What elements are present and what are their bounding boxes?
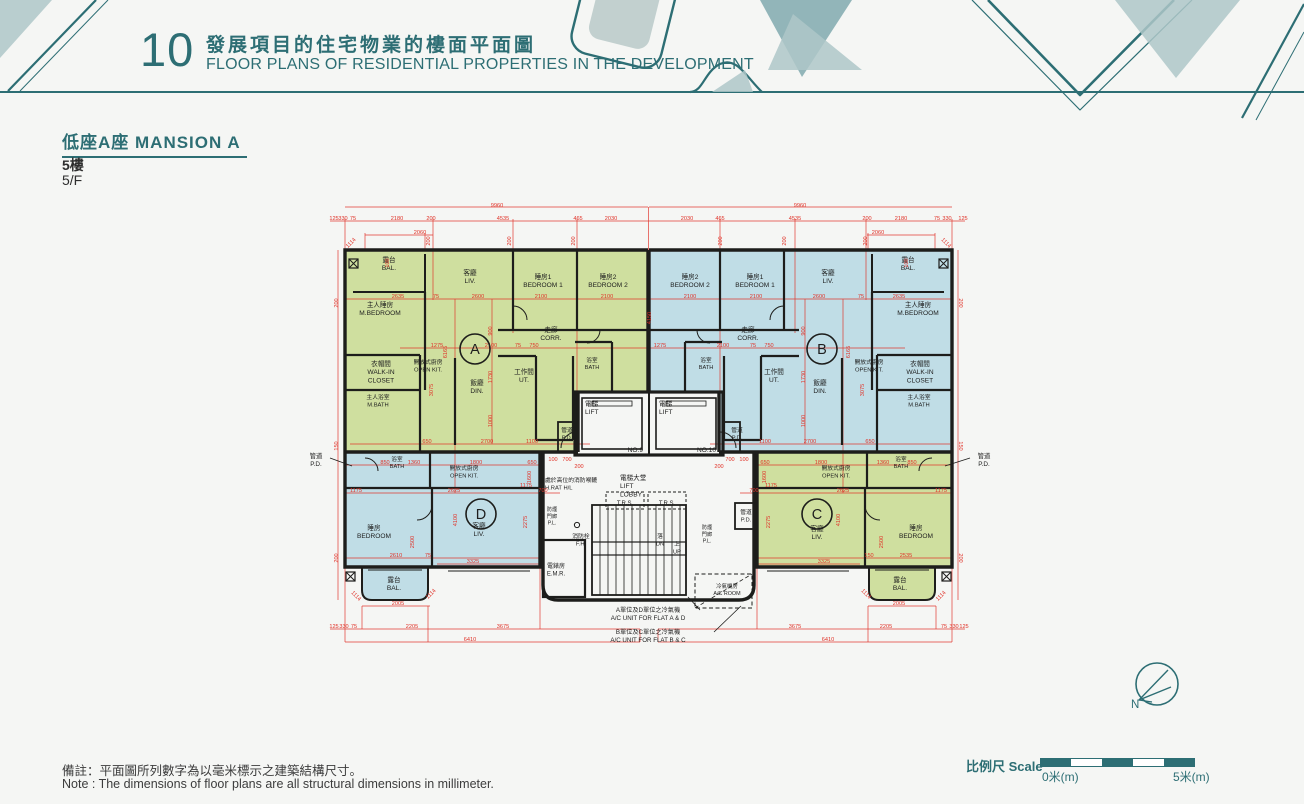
dimension-label: 700 [725,457,734,463]
dimension-label: 1275 [654,343,666,349]
dimension-label: 2060 [414,230,426,236]
dimension-label: 4535 [497,216,509,222]
dimension-label: 2700 [481,439,493,445]
dimension-label: 330 [339,624,348,630]
dimension-label: 125 [329,624,338,630]
dimension-label: 6410 [464,637,476,643]
room-label: 消防栓F.H. [572,532,590,547]
dimension-label: 200 [426,236,432,245]
compass: N [1131,663,1178,711]
room-label: 電梯LIFT [659,399,673,416]
floor-plan-svg: 露台BAL.客廳LIV.睡房1BEDROOM 1睡房2BEDROOM 2主人睡房… [0,0,1304,804]
header-decoration [0,0,1304,120]
dimension-label: 2100 [717,343,729,349]
dimension-label: 75 [934,216,940,222]
dimension-label: 2700 [804,439,816,445]
dimension-label: 700 [749,488,758,494]
dimension-label: 2535 [900,553,912,559]
room-label: 管道P.D. [731,426,743,441]
room-label: 衣帽間WALK-INCLOSET [367,359,394,384]
dimension-label: 1360 [877,460,889,466]
dimension-label: 650 [760,460,769,466]
dimension-label: 2005 [893,601,905,607]
room-label: 處於高位的消防喉轆H.RAT H/L [545,476,597,491]
dimension-label: 2100 [684,294,696,300]
dimension-label: 1114 [349,590,361,602]
dimension-label: 75 [425,553,431,559]
dimension-label: 1360 [408,460,420,466]
dimension-label: 75 [433,294,439,300]
dimension-label: 200 [863,236,869,245]
dimension-label: 9960 [491,203,503,209]
dimension-label: 2275 [523,516,529,528]
dimension-label: 9960 [794,203,806,209]
room-label: 開放式廚房OPEN KIT. [855,358,884,373]
room-label: 電錶房E.M.R. [547,562,566,578]
dimension-label: 2635 [893,294,905,300]
dimension-label: 200 [571,236,577,245]
dimension-label: 150 [334,441,340,450]
dimension-label: 6165 [846,346,852,358]
dimension-label: 4150 [647,312,653,324]
dimension-label: 6410 [822,637,834,643]
room-label: 冷氣機房A/C ROOM [713,582,741,597]
dimension-label: 1175 [350,488,362,494]
room-label: 飯廳DIN. [470,378,484,395]
dimension-label: 1100 [759,439,771,445]
dimension-label: 125 [959,624,968,630]
dimension-label: 4100 [453,514,459,526]
dimension-label: 200 [714,464,723,470]
scale-label: 比例尺 Scale [966,756,1043,775]
dimension-label: 1000 [801,415,807,427]
fire-hydrant-icon [574,522,579,527]
room-label: 管道P.D. [561,426,573,441]
dimension-label: 750 [764,343,773,349]
dimension-label: 2635 [392,294,404,300]
dimension-label: 75 [351,624,357,630]
flat-d-area [345,452,540,567]
dimension-label: 2600 [472,294,484,300]
dimension-label: 1000 [488,415,494,427]
dimension-label: 850 [380,460,389,466]
dimension-label: 3675 [497,624,509,630]
room-label: 浴室BATH [894,455,909,470]
dimension-label: 200 [426,216,435,222]
dimension-label: 150 [957,441,963,450]
dimension-label: 75 [941,624,947,630]
dimension-label: 2100 [535,294,547,300]
room-label: NO.9 [628,447,644,454]
dimension-label: 650 [527,460,536,466]
dimension-label: 2500 [879,536,885,548]
dimension-label: 200 [507,236,513,245]
unit-b-mark: B [817,342,827,358]
room-label: 落DN [656,532,664,547]
dimension-label: 2610 [390,553,402,559]
dimension-label: 700 [562,457,571,463]
dimension-label: 1175 [935,488,947,494]
dimension-label: 200 [782,236,788,245]
dimension-label: 900 [488,326,494,335]
dimension-label: 2030 [605,216,617,222]
dimension-label: 2625 [448,488,460,494]
dimension-label: 1114 [935,590,947,602]
dimension-label: 330 [949,624,958,630]
dimension-label: 200 [957,553,963,562]
dimension-label: 1800 [470,460,482,466]
room-label: 客廳LIV. [463,268,477,285]
dimension-label: 200 [862,216,871,222]
dimension-label: 75 [750,343,756,349]
room-label: 浴室BATH [585,356,600,371]
dimension-label: 1800 [815,460,827,466]
dimension-label: 1275 [431,343,443,349]
unit-a-mark: A [470,342,480,358]
room-label: 衣帽間WALK-INCLOSET [906,359,933,384]
room-label: 開放式廚房OPEN KIT. [414,358,443,373]
dimension-label: 100 [739,457,748,463]
dimension-label: 150 [864,553,873,559]
unit-d-mark: D [476,507,486,523]
room-label: 浴室BATH [390,455,405,470]
room-label: 浴室BATH [699,356,714,371]
dimension-label: 2060 [872,230,884,236]
room-label: A單位及D單位之冷氣機A/C UNIT FOR FLAT A & D [611,606,686,622]
dimension-label: 2100 [601,294,613,300]
dimension-label: 3675 [789,624,801,630]
dimension-label: 2600 [813,294,825,300]
room-label: 防煙門廊P.L. [547,505,557,527]
room-label: T.R.S. [659,501,676,507]
room-label: 主人浴室M.BATH [366,393,389,408]
dimension-label: 125 [329,216,338,222]
scale-start-label: 0米(m) [1042,768,1079,785]
dimension-label: 200 [334,298,340,307]
room-label: 開放式廚房OPEN KIT. [822,464,851,479]
dimension-label: 650 [422,439,431,445]
room-label: T.R.S. [617,501,634,507]
stair-treads [600,505,680,595]
dimension-label: 2030 [681,216,693,222]
room-label: 管道P.D. [978,451,991,468]
dimension-label: 2625 [837,488,849,494]
room-label: 防煙門廊P.L. [702,523,712,545]
room-label: 飯廳DIN. [813,378,827,395]
note-en: Note : The dimensions of floor plans are… [62,777,494,791]
room-label: 主人浴室M.BATH [907,393,930,408]
dimension-label: 4100 [836,514,842,526]
room-label: 管道P.D. [310,451,323,468]
dimension-label: 700 [538,488,547,494]
room-label: B單位及C單位之冷氣機A/C UNIT FOR FLAT B & C [610,628,686,644]
dimension-label: 75 [858,294,864,300]
room-label: 開放式廚房OPEN KIT. [450,464,479,479]
dimension-label: 6165 [443,346,449,358]
dimension-label: 200 [957,298,963,307]
dimension-label: 465 [715,216,724,222]
dimension-label: 2180 [895,216,907,222]
dimension-label: 1100 [526,439,538,445]
dimension-label: 2005 [392,601,404,607]
dimension-label: 2275 [766,516,772,528]
dimension-label: 200 [718,236,724,245]
dimension-label: 2100 [485,343,497,349]
scale-end-label: 5米(m) [1173,768,1210,785]
dimension-label: 2205 [880,624,892,630]
dimension-label: 1114 [345,237,357,249]
dimension-label: 1114 [939,237,951,249]
dimension-label: 650 [865,439,874,445]
scale-bar [1040,758,1195,767]
dimension-label: 750 [529,343,538,349]
dimension-label: 2100 [750,294,762,300]
dimension-label: 2180 [391,216,403,222]
dimension-label: 900 [801,326,807,335]
dimension-label: 1730 [488,371,494,383]
dimension-label: 4535 [789,216,801,222]
dimension-label: 1600 [527,471,533,483]
dimension-label: 1600 [762,471,768,483]
dimension-label: 3325 [818,559,830,565]
dimension-label: 100 [385,258,391,267]
room-label: 露台BAL. [893,575,907,592]
compass-n-label: N [1131,699,1139,711]
unit-c-mark: C [812,507,822,523]
room-label: 客廳LIV. [810,524,824,541]
dimension-label: 75 [350,216,356,222]
dimension-label: 465 [573,216,582,222]
room-label: 客廳LIV. [821,268,835,285]
dimension-label: 200 [334,553,340,562]
dimension-label: 2500 [410,536,416,548]
room-label: 管道P.D. [740,508,752,523]
dimension-label: 100 [548,457,557,463]
dimension-label: 850 [907,460,916,466]
dimension-label: 125 [958,216,967,222]
dimension-label: 100 [904,258,910,267]
dimension-label: 330 [338,216,347,222]
room-label: 露台BAL. [387,575,401,592]
dimension-label: 330 [942,216,951,222]
room-label: 電梯LIFT [585,399,599,416]
dimension-label: 3075 [860,384,866,396]
room-label: NO.10 [697,447,716,454]
flat-c-area [757,452,952,567]
dimension-label: 75 [515,343,521,349]
dimension-label: 1730 [801,371,807,383]
dimension-label: 2205 [406,624,418,630]
dimension-label: 3075 [429,384,435,396]
room-label: 電梯大堂LIFTLOBBY [620,473,647,498]
dimension-label: 200 [574,464,583,470]
dimension-label: 3325 [467,559,479,565]
